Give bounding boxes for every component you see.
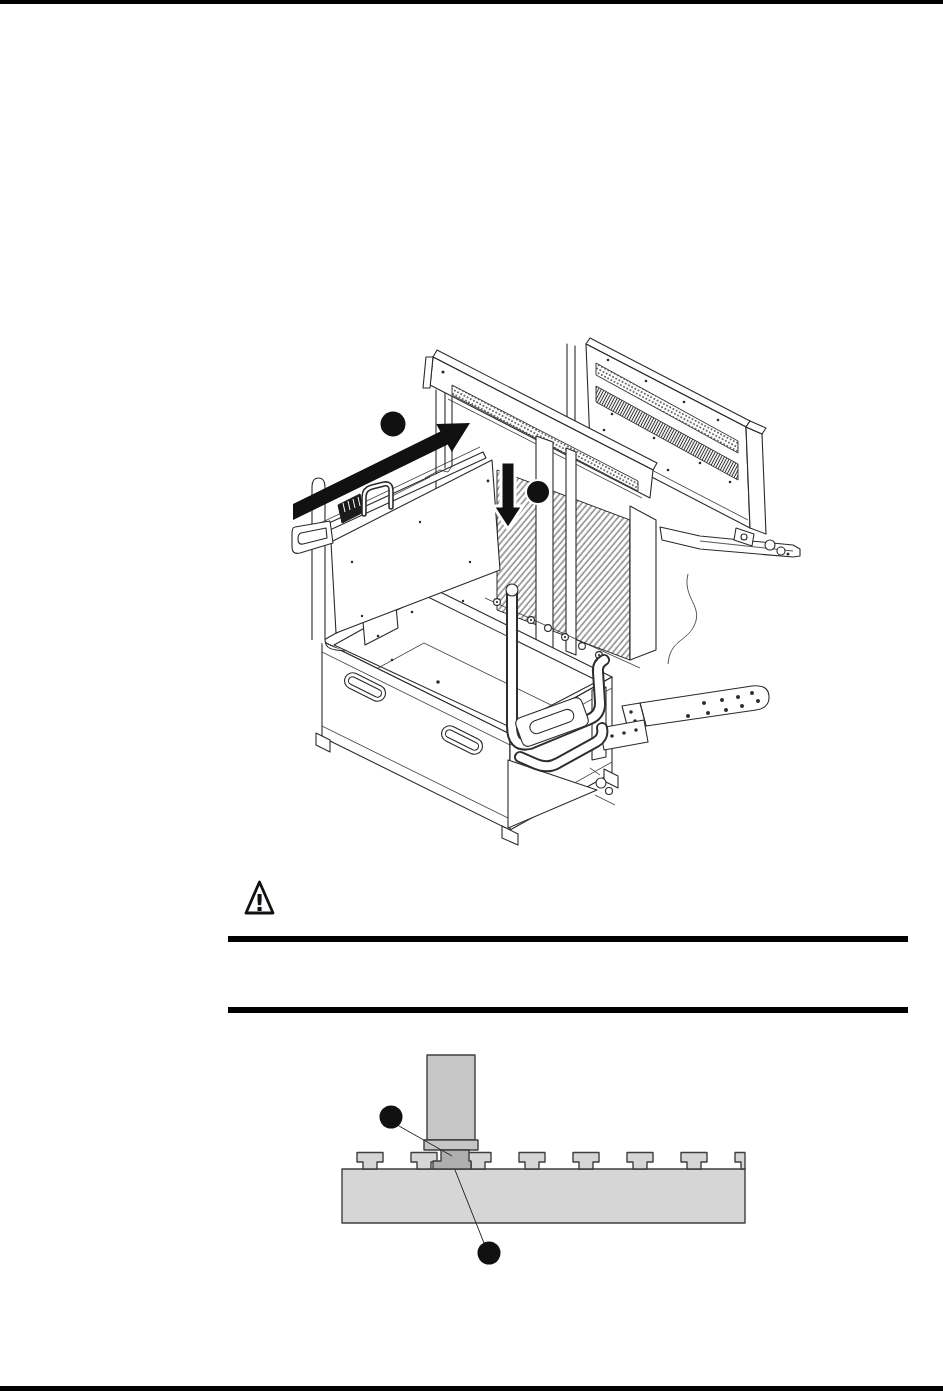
manual-page: ! [0, 0, 943, 1391]
cable [668, 574, 697, 664]
callout-marker-2 [526, 480, 550, 504]
warning-exclamation: ! [254, 890, 265, 916]
foot-t-pad [433, 1150, 471, 1169]
mounting-arm [640, 686, 769, 726]
caution-rule-top [228, 936, 908, 942]
rail-end-bracket [292, 521, 333, 553]
t-slot-base-plate [342, 1169, 745, 1223]
callout-marker-3 [380, 1106, 403, 1129]
callout-marker-4 [478, 1242, 501, 1265]
t-slot-bosses [357, 1153, 745, 1170]
rear-panel [586, 338, 766, 534]
caution-rule-bottom [228, 1007, 908, 1013]
page-bottom-edge-bar [0, 1386, 943, 1391]
leveling-foot-column [427, 1055, 475, 1140]
page-canvas: ! [0, 0, 943, 1391]
callout-marker-1 [381, 412, 406, 437]
assembly-figure [292, 338, 800, 845]
caution-block: ! [228, 882, 908, 1013]
drawer-connector-board [338, 494, 364, 523]
page-top-edge-bar [0, 0, 943, 4]
warning-triangle-icon: ! [246, 882, 273, 916]
foot-slot-figure [342, 1055, 745, 1265]
